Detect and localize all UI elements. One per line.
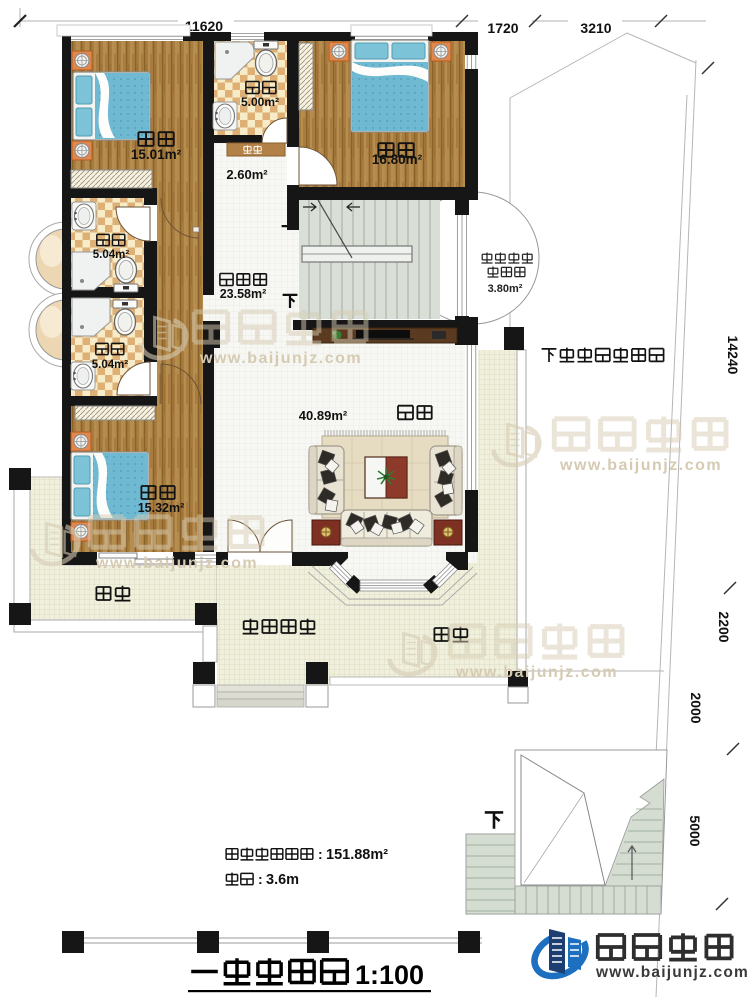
- svg-text:www.baijunjz.com: www.baijunjz.com: [595, 964, 749, 981]
- svg-text:11620: 11620: [185, 18, 223, 34]
- svg-text:5.04m²: 5.04m²: [92, 359, 129, 371]
- svg-text:5.00m²: 5.00m²: [241, 95, 279, 109]
- svg-text:40.89m²: 40.89m²: [299, 408, 348, 423]
- svg-text:www.baijunjz.com: www.baijunjz.com: [95, 555, 258, 572]
- svg-text:www.baijunjz.com: www.baijunjz.com: [455, 664, 618, 681]
- svg-text:www.baijunjz.com: www.baijunjz.com: [559, 457, 722, 474]
- svg-text:2.60m²: 2.60m²: [226, 167, 268, 182]
- svg-text::: :: [318, 846, 323, 862]
- svg-text:5.04m²: 5.04m²: [93, 249, 130, 261]
- svg-text:5000: 5000: [687, 815, 703, 846]
- svg-text:1:100: 1:100: [355, 960, 424, 990]
- svg-text:3210: 3210: [580, 20, 611, 36]
- svg-text:151.88m²: 151.88m²: [326, 847, 388, 863]
- svg-text:15.01m²: 15.01m²: [131, 147, 182, 162]
- svg-text::: :: [258, 871, 263, 887]
- svg-text:16.80m²: 16.80m²: [372, 152, 423, 167]
- svg-text:15.32m²: 15.32m²: [138, 501, 185, 515]
- svg-text:3.80m²: 3.80m²: [488, 283, 523, 295]
- svg-text:2200: 2200: [716, 611, 732, 642]
- svg-text:23.58m²: 23.58m²: [220, 287, 267, 301]
- svg-text:14240: 14240: [725, 336, 741, 375]
- svg-text:1720: 1720: [487, 20, 518, 36]
- svg-text:2000: 2000: [688, 692, 704, 723]
- svg-text:3.6m: 3.6m: [266, 872, 299, 888]
- svg-text:www.baijunjz.com: www.baijunjz.com: [199, 350, 362, 367]
